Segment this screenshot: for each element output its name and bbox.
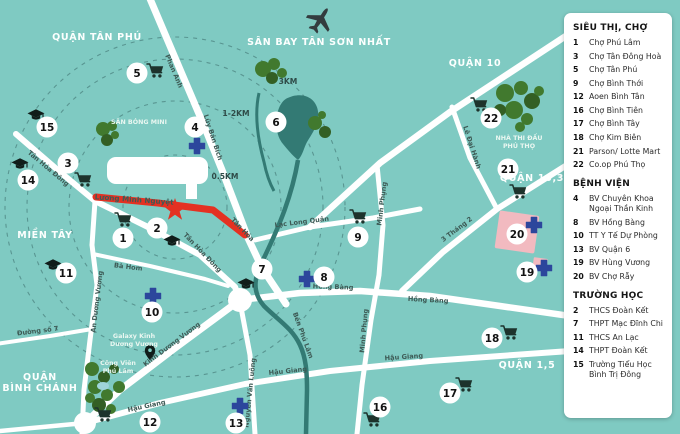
legend-item: 2THCS Đoàn Kết xyxy=(573,306,664,316)
area-label: SÂN BAY TÂN SƠN NHẤT xyxy=(247,35,391,48)
svg-text:2: 2 xyxy=(153,223,160,235)
place-label: Galaxy KinhDương Vương xyxy=(110,333,158,348)
legend-section-title: TRƯỜNG HỌC xyxy=(573,291,664,301)
svg-text:11: 11 xyxy=(59,268,74,280)
map-marker-16: 16 xyxy=(370,397,391,418)
legend-item: 14THPT Đoàn Kết xyxy=(573,346,664,356)
svg-text:17: 17 xyxy=(443,388,458,400)
svg-text:15: 15 xyxy=(40,122,55,134)
legend-item: 11THCS An Lạc xyxy=(573,333,664,343)
svg-text:9: 9 xyxy=(354,232,361,244)
map-marker-1: 1 xyxy=(113,228,134,249)
legend-item: 20BV Chợ Rẫy xyxy=(573,272,664,282)
svg-text:4: 4 xyxy=(191,122,198,134)
svg-text:20: 20 xyxy=(510,229,525,241)
legend-item: 19BV Hùng Vương xyxy=(573,258,664,268)
legend-item: 12Aoen Bình Tân xyxy=(573,92,664,102)
distance-label: 3KM xyxy=(279,77,298,86)
svg-text:16: 16 xyxy=(373,402,388,414)
legend-section-schools: TRƯỜNG HỌC 2THCS Đoàn Kết7THPT Mạc Đĩnh … xyxy=(573,291,664,380)
legend-item: 16Chợ Bình Tiên xyxy=(573,106,664,116)
map-marker-7: 7 xyxy=(252,259,273,280)
roundabout xyxy=(228,288,252,312)
legend-item: 21Parson/ Lotte Mart xyxy=(573,147,664,157)
svg-text:18: 18 xyxy=(485,333,500,345)
map-marker-5: 5 xyxy=(127,63,148,84)
area-label: QUẬN TÂN PHÚ xyxy=(52,31,142,43)
svg-text:8: 8 xyxy=(320,272,327,284)
area-label: MIỀN TÂY xyxy=(17,228,72,241)
map-marker-19: 19 xyxy=(517,262,538,283)
svg-text:21: 21 xyxy=(501,164,516,176)
map-marker-12: 12 xyxy=(140,412,161,433)
roundabout xyxy=(74,412,96,434)
legend-item: 9Chợ Bình Thới xyxy=(573,79,664,89)
svg-text:5: 5 xyxy=(133,68,140,80)
place-label: SÂN BÓNG MINI xyxy=(111,117,167,126)
legend-items: 1Chợ Phú Lâm3Chợ Tân Đông Hoà5Chợ Tân Ph… xyxy=(573,38,664,170)
legend-item: 5Chợ Tân Phú xyxy=(573,65,664,75)
svg-text:3: 3 xyxy=(64,158,71,170)
map-marker-9: 9 xyxy=(348,227,369,248)
svg-text:19: 19 xyxy=(520,267,535,279)
svg-text:12: 12 xyxy=(143,417,158,429)
map-marker-22: 22 xyxy=(481,108,502,129)
svg-text:7: 7 xyxy=(258,264,265,276)
map-marker-17: 17 xyxy=(440,383,461,404)
legend-item: 13BV Quận 6 xyxy=(573,245,664,255)
distance-label: 0.5KM xyxy=(212,172,239,181)
map-marker-4: 4 xyxy=(185,117,206,138)
area-label: QUẬN 1,5 xyxy=(499,360,556,371)
map-marker-15: 15 xyxy=(37,117,58,138)
area-label: QUẬN 10 xyxy=(449,58,502,69)
legend-section-title: SIÊU THỊ, CHỢ xyxy=(573,23,664,33)
legend-item: 8BV Hồng Bàng xyxy=(573,218,664,228)
park-pond xyxy=(97,382,109,390)
legend-item: 10TT Y Tế Dự Phòng xyxy=(573,231,664,241)
legend-item: 3Chợ Tân Đông Hoà xyxy=(573,52,664,62)
svg-text:6: 6 xyxy=(272,117,279,129)
map-marker-6: 6 xyxy=(266,112,287,133)
svg-text:10: 10 xyxy=(145,307,160,319)
map-marker-13: 13 xyxy=(226,413,247,434)
legend-item: 4BV Chuyên Khoa Ngoại Thần Kinh xyxy=(573,194,664,214)
distance-label: 1-2KM xyxy=(222,109,249,118)
legend-item: 15Trường Tiểu Học Bình Trị Đông xyxy=(573,360,664,380)
legend-panel: SIÊU THỊ, CHỢ 1Chợ Phú Lâm3Chợ Tân Đông … xyxy=(564,13,672,418)
map-marker-8: 8 xyxy=(314,267,335,288)
map-marker-11: 11 xyxy=(56,263,77,284)
map-marker-2: 2 xyxy=(147,218,168,239)
map-marker-18: 18 xyxy=(482,328,503,349)
map-marker-20: 20 xyxy=(507,224,528,245)
legend-item: 18Chợ Kim Biên xyxy=(573,133,664,143)
svg-text:1: 1 xyxy=(119,233,126,245)
legend-item: 7THPT Mạc Đĩnh Chi xyxy=(573,319,664,329)
legend-items: 4BV Chuyên Khoa Ngoại Thần Kinh8BV Hồng … xyxy=(573,194,664,282)
legend-item: 17Chợ Bình Tây xyxy=(573,119,664,129)
map-marker-10: 10 xyxy=(142,302,163,323)
location-map-page: QUẬN TÂN PHÚSÂN BAY TÂN SƠN NHẤTQUẬN 10Q… xyxy=(0,0,680,434)
legend-section-hospitals: BỆNH VIỆN 4BV Chuyên Khoa Ngoại Thần Kin… xyxy=(573,179,664,282)
svg-text:22: 22 xyxy=(484,113,499,125)
legend-item: 1Chợ Phú Lâm xyxy=(573,38,664,48)
map-marker-21: 21 xyxy=(498,159,519,180)
map-marker-14: 14 xyxy=(18,170,39,191)
legend-section-markets: SIÊU THỊ, CHỢ 1Chợ Phú Lâm3Chợ Tân Đông … xyxy=(573,23,664,170)
legend-section-title: BỆNH VIỆN xyxy=(573,179,664,189)
svg-text:14: 14 xyxy=(21,175,36,187)
legend-items: 2THCS Đoàn Kết7THPT Mạc Đĩnh Chi11THCS A… xyxy=(573,306,664,380)
svg-text:13: 13 xyxy=(229,418,244,430)
map-marker-3: 3 xyxy=(58,153,79,174)
legend-item: 22Co.op Phú Thọ xyxy=(573,160,664,170)
